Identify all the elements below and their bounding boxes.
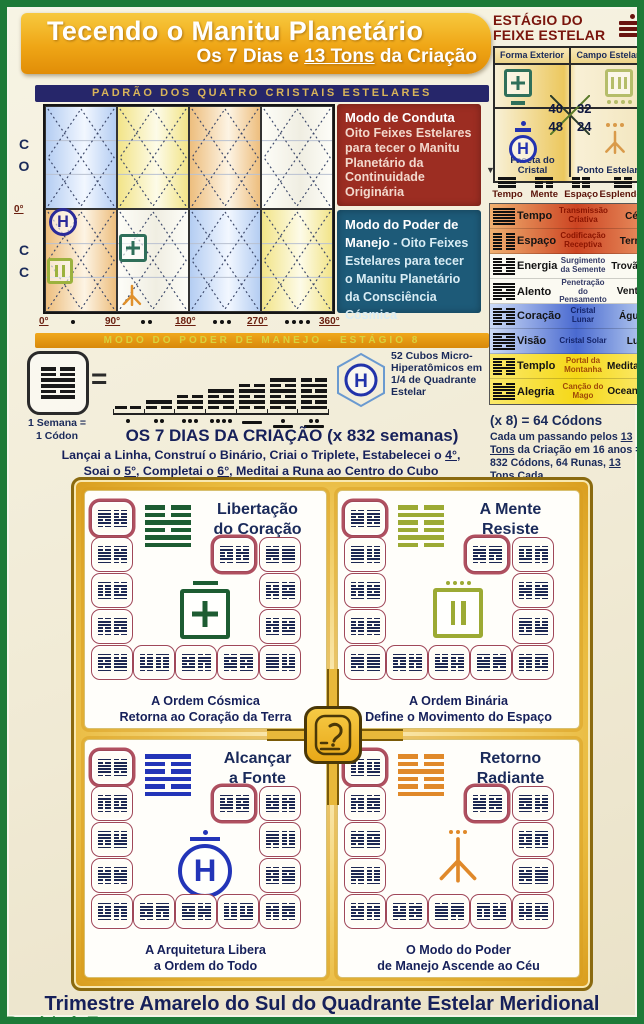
hx-row bbox=[493, 364, 515, 366]
square-plus-icon bbox=[504, 69, 532, 105]
hx-row bbox=[493, 270, 515, 272]
hexagram-icon bbox=[535, 546, 548, 564]
chart-cell bbox=[45, 106, 117, 209]
hx-row bbox=[114, 883, 127, 885]
hx-row bbox=[98, 867, 111, 869]
hx-row bbox=[98, 873, 111, 875]
hx-row bbox=[493, 286, 515, 288]
hx-row bbox=[266, 883, 279, 885]
hx-row bbox=[535, 811, 548, 813]
hx-row bbox=[473, 801, 486, 803]
hx-row bbox=[535, 831, 548, 833]
hx-row bbox=[519, 582, 532, 584]
quadrant-caption: A Arquitetura Liberaa Ordem do Todo bbox=[85, 942, 326, 974]
hexagram-icon bbox=[98, 903, 111, 921]
hexagram-icon bbox=[98, 618, 111, 636]
hx-row bbox=[367, 591, 380, 593]
hexagram-icon bbox=[535, 618, 548, 636]
deco-dot bbox=[521, 121, 526, 126]
hx-row bbox=[41, 390, 75, 394]
hx-row bbox=[282, 840, 295, 842]
hx-row bbox=[145, 528, 191, 533]
deco-bar bbox=[511, 101, 525, 105]
hx-row bbox=[409, 654, 422, 656]
rune-tile bbox=[91, 573, 133, 608]
rune-tile bbox=[91, 501, 133, 536]
rune-tile bbox=[213, 537, 255, 572]
hx-row bbox=[282, 582, 295, 584]
hx-row bbox=[98, 883, 111, 885]
hx-row bbox=[98, 558, 111, 560]
hx-row bbox=[367, 598, 380, 600]
hexagram-icon bbox=[239, 384, 265, 410]
hx-row bbox=[493, 383, 515, 385]
hx-row bbox=[182, 654, 195, 656]
hx-row bbox=[220, 804, 233, 806]
hx-row bbox=[266, 555, 279, 557]
svg-text:H: H bbox=[354, 371, 368, 392]
hx-row bbox=[493, 323, 515, 325]
hx-row bbox=[198, 915, 211, 917]
hx-row bbox=[98, 670, 111, 672]
hx-row bbox=[114, 775, 127, 777]
hexagram-icon bbox=[114, 867, 127, 885]
axis-label: 0° bbox=[39, 316, 49, 327]
hx-row bbox=[114, 552, 127, 554]
hx-row bbox=[266, 549, 279, 551]
hexagram-icon bbox=[451, 903, 464, 921]
hx-row bbox=[266, 807, 279, 809]
hx-row bbox=[140, 654, 153, 656]
hexagram-icon bbox=[493, 208, 515, 225]
stage-num-40: 40 bbox=[549, 101, 563, 116]
hx-row bbox=[282, 562, 295, 564]
hx-row bbox=[409, 660, 422, 662]
hx-row bbox=[156, 906, 169, 908]
hx-row bbox=[519, 558, 532, 560]
hx-row bbox=[301, 384, 327, 388]
hx-row bbox=[535, 873, 548, 875]
hx-row bbox=[240, 663, 253, 665]
hx-row bbox=[351, 657, 364, 659]
hx-row bbox=[351, 585, 364, 587]
hexagram-icon bbox=[493, 654, 506, 672]
hx-row bbox=[145, 769, 191, 774]
hx-row bbox=[182, 912, 195, 914]
hx-row bbox=[493, 339, 515, 341]
hexagram-icon bbox=[266, 654, 279, 672]
conduct-body: Oito Feixes Estelares para tecer o Manit… bbox=[345, 126, 473, 200]
hx-row bbox=[41, 378, 75, 382]
hexagram-icon bbox=[224, 654, 237, 672]
quadrant-libertacao-do-coracao: Libertaçãodo Coração A Ordem CósmicaReto… bbox=[84, 490, 327, 729]
hexagon-crystal-icon: H bbox=[334, 351, 388, 414]
sym-core: H bbox=[509, 135, 537, 163]
hx-row bbox=[489, 801, 502, 803]
hx-row bbox=[519, 795, 532, 797]
hx-row bbox=[220, 555, 233, 557]
hx-row bbox=[282, 847, 295, 849]
hx-row bbox=[493, 223, 515, 225]
hx-row bbox=[398, 505, 444, 510]
hx-row bbox=[493, 273, 515, 275]
hx-row bbox=[367, 663, 380, 665]
hx-row bbox=[398, 777, 444, 782]
codon-desc: Codificação Receptiva bbox=[559, 232, 607, 249]
hx-row bbox=[41, 373, 75, 377]
deco-bar bbox=[193, 581, 218, 585]
hexagram-icon bbox=[156, 903, 169, 921]
hx-row bbox=[519, 618, 532, 620]
hx-row bbox=[535, 624, 548, 626]
hx-row bbox=[519, 546, 532, 548]
hx-row bbox=[98, 903, 111, 905]
hx-row bbox=[519, 912, 532, 914]
trident-icon bbox=[603, 123, 627, 159]
hx-row bbox=[493, 308, 515, 310]
hx-row bbox=[98, 634, 111, 636]
hx-row bbox=[493, 392, 515, 394]
hx-row bbox=[282, 585, 295, 587]
hx-row bbox=[535, 906, 548, 908]
hx-row bbox=[114, 867, 127, 869]
hx-row bbox=[409, 919, 422, 921]
hx-row bbox=[266, 831, 279, 833]
hx-row bbox=[266, 879, 279, 881]
hx-row bbox=[351, 552, 364, 554]
hx-row bbox=[114, 654, 127, 656]
hx-row bbox=[477, 915, 490, 917]
instr1-underlined: 4° bbox=[445, 448, 457, 462]
title-line2: a Fonte bbox=[229, 770, 286, 787]
hx-row bbox=[451, 670, 464, 672]
hx-row bbox=[367, 526, 380, 528]
hexagram-icon bbox=[535, 831, 548, 849]
hx-row bbox=[220, 795, 233, 797]
hx-row bbox=[519, 594, 532, 596]
hx-row bbox=[266, 798, 279, 800]
hx-row bbox=[266, 912, 279, 914]
hx-row bbox=[140, 657, 153, 659]
rune-tile bbox=[91, 645, 133, 680]
hx-row bbox=[351, 919, 364, 921]
hexagram-icon bbox=[351, 867, 364, 885]
axis-label: 180° bbox=[175, 316, 196, 327]
hexagram-icon bbox=[98, 582, 111, 600]
hx-row bbox=[398, 792, 444, 797]
hx-row bbox=[493, 670, 506, 672]
hx-row bbox=[493, 660, 506, 662]
hx-row bbox=[145, 784, 191, 789]
hx-row bbox=[220, 552, 233, 554]
day-stack bbox=[175, 395, 206, 410]
hx-row bbox=[114, 919, 127, 921]
title-line2: do Coração bbox=[213, 521, 301, 538]
hx-row bbox=[398, 543, 444, 548]
hx-row bbox=[282, 630, 295, 632]
hx-row bbox=[114, 594, 127, 596]
hx-row bbox=[493, 298, 515, 300]
hx-row bbox=[114, 663, 127, 665]
hx-row bbox=[224, 909, 237, 911]
hexagram-icon bbox=[473, 546, 486, 564]
hexagram-cell bbox=[491, 333, 517, 350]
subtitle-post: da Criação bbox=[375, 46, 477, 67]
hx-row bbox=[114, 762, 127, 764]
hx-row bbox=[98, 807, 111, 809]
deco-dots bbox=[607, 100, 632, 104]
hx-row bbox=[351, 873, 364, 875]
rune-tile bbox=[175, 894, 217, 929]
hx-row bbox=[140, 666, 153, 668]
hexagram-icon bbox=[114, 759, 127, 777]
hx-row bbox=[535, 666, 548, 668]
hx-row bbox=[114, 804, 127, 806]
trigram-column: Esplendor bbox=[600, 177, 644, 200]
hx-row bbox=[98, 876, 111, 878]
hexagram-icon bbox=[240, 654, 253, 672]
hx-row bbox=[156, 915, 169, 917]
hx-row bbox=[351, 510, 364, 512]
hx-row bbox=[98, 510, 111, 512]
hx-row bbox=[182, 906, 195, 908]
trigram-label: Tempo bbox=[492, 189, 522, 200]
hx-row bbox=[114, 843, 127, 845]
hx-row bbox=[182, 919, 195, 921]
circle-h-icon: H bbox=[509, 121, 537, 163]
hx-row bbox=[393, 663, 406, 665]
stage-title-line2: FEIXE ESTELAR bbox=[493, 27, 605, 43]
rune-tile bbox=[259, 573, 301, 608]
hx-row bbox=[301, 389, 327, 393]
hx-row bbox=[114, 513, 127, 515]
hx-row bbox=[182, 909, 195, 911]
hx-row bbox=[493, 336, 515, 338]
hx-row bbox=[114, 870, 127, 872]
hx-row bbox=[535, 801, 548, 803]
hx-row bbox=[493, 211, 515, 213]
hx-row bbox=[41, 367, 75, 371]
hx-row bbox=[156, 912, 169, 914]
day-stack bbox=[298, 378, 329, 409]
hx-row bbox=[367, 627, 380, 629]
stage-num-32: 32 bbox=[577, 101, 591, 116]
hx-row bbox=[519, 831, 532, 833]
hx-row bbox=[114, 666, 127, 668]
rune-tile bbox=[344, 501, 386, 536]
hx-row bbox=[493, 245, 515, 247]
codon-row: VisãoCristal SolarLuz bbox=[490, 329, 644, 354]
hx-row bbox=[282, 621, 295, 623]
hx-row bbox=[240, 912, 253, 914]
hx-row bbox=[114, 624, 127, 626]
hx-row bbox=[535, 804, 548, 806]
hx-row bbox=[98, 552, 111, 554]
hexagram-icon bbox=[114, 654, 127, 672]
power-mode-box: Modo do Poder de Manejo - Oito Feixes Es… bbox=[337, 210, 481, 313]
hx-row bbox=[489, 807, 502, 809]
hx-row bbox=[98, 775, 111, 777]
footer-sep: - bbox=[133, 1018, 143, 1024]
sym-core bbox=[119, 234, 147, 262]
trident-icon bbox=[435, 830, 481, 888]
my-dots bbox=[154, 419, 164, 423]
instruction-line1: Lançai a Linha, Construí o Binário, Cria… bbox=[31, 448, 491, 464]
trigram-column: Espaço bbox=[563, 177, 600, 200]
hx-row bbox=[367, 516, 380, 518]
hx-row bbox=[393, 909, 406, 911]
hx-row bbox=[493, 217, 515, 219]
hx-row bbox=[493, 915, 506, 917]
rune-tile bbox=[470, 645, 512, 680]
hx-row bbox=[270, 395, 296, 399]
hx-row bbox=[535, 657, 548, 659]
hexagram-icon bbox=[519, 795, 532, 813]
hx-row bbox=[351, 666, 364, 668]
hexagram-icon bbox=[451, 654, 464, 672]
hx-row bbox=[451, 909, 464, 911]
circle-h-icon: H bbox=[49, 208, 77, 236]
hx-row bbox=[266, 670, 279, 672]
hx-row bbox=[198, 666, 211, 668]
hx-row bbox=[208, 400, 234, 404]
hx-row bbox=[435, 670, 448, 672]
hx-row bbox=[236, 801, 249, 803]
hexagram-icon bbox=[114, 510, 127, 528]
hx-row bbox=[114, 558, 127, 560]
hx-row bbox=[266, 618, 279, 620]
hx-row bbox=[351, 867, 364, 869]
hx-row bbox=[409, 666, 422, 668]
hx-row bbox=[220, 801, 233, 803]
rune-tile bbox=[512, 609, 554, 644]
hx-row bbox=[367, 660, 380, 662]
hx-row bbox=[282, 804, 295, 806]
hx-row bbox=[266, 843, 279, 845]
hexagram-icon bbox=[266, 795, 279, 813]
my-dots bbox=[210, 419, 232, 423]
hx-row bbox=[98, 516, 111, 518]
hx-row bbox=[398, 513, 444, 518]
hx-row bbox=[145, 792, 191, 797]
hx-row bbox=[98, 771, 111, 773]
hexagram-icon bbox=[282, 582, 295, 600]
hx-row bbox=[351, 522, 364, 524]
hx-row bbox=[236, 549, 249, 551]
hx-row bbox=[535, 834, 548, 836]
rune-tile bbox=[466, 537, 508, 572]
codon-element: Água bbox=[607, 311, 644, 322]
hx-row bbox=[489, 562, 502, 564]
hx-row bbox=[435, 903, 448, 905]
rune-tile bbox=[259, 786, 301, 821]
hx-row bbox=[367, 795, 380, 797]
hx-row bbox=[98, 879, 111, 881]
hexagram-icon bbox=[114, 618, 127, 636]
stage-grid: Forma Exterior Campo Estelar 40 32 48 24… bbox=[493, 46, 644, 183]
codon-name: Energia bbox=[517, 260, 559, 272]
hx-row bbox=[473, 798, 486, 800]
hx-row bbox=[266, 847, 279, 849]
hx-row bbox=[489, 804, 502, 806]
axis-dots bbox=[285, 320, 310, 324]
hexagram-icon bbox=[614, 177, 632, 188]
rune-tile bbox=[344, 822, 386, 857]
hx-row bbox=[351, 513, 364, 515]
hx-row bbox=[220, 562, 233, 564]
hx-row bbox=[98, 906, 111, 908]
hx-row bbox=[393, 657, 406, 659]
hexagram-icon bbox=[519, 903, 532, 921]
hx-row bbox=[98, 804, 111, 806]
hexagram-icon bbox=[572, 177, 590, 188]
hx-row bbox=[114, 582, 127, 584]
hx-row bbox=[451, 912, 464, 914]
note-p1: Cada um passando pelos bbox=[490, 431, 621, 443]
hx-row bbox=[367, 834, 380, 836]
hexagram-icon bbox=[435, 903, 448, 921]
hx-row bbox=[367, 555, 380, 557]
hx-row bbox=[535, 903, 548, 905]
hx-row bbox=[367, 912, 380, 914]
hx-row bbox=[493, 373, 515, 375]
hx-row bbox=[367, 552, 380, 554]
hx-row bbox=[114, 562, 127, 564]
hx-row bbox=[351, 549, 364, 551]
hx-row bbox=[498, 177, 516, 180]
hx-row bbox=[220, 546, 233, 548]
hx-row bbox=[489, 552, 502, 554]
hx-row bbox=[156, 660, 169, 662]
hx-row bbox=[493, 314, 515, 316]
hexagram-icon bbox=[477, 654, 490, 672]
hx-row bbox=[198, 670, 211, 672]
trigram-header-row: TempoMenteEspaçoEsplendor bbox=[489, 177, 644, 200]
hx-row bbox=[98, 627, 111, 629]
rune-tile bbox=[344, 645, 386, 680]
hx-row bbox=[140, 663, 153, 665]
label-cc: CC bbox=[15, 239, 33, 284]
big-hexagram bbox=[398, 505, 444, 547]
hx-row bbox=[266, 906, 279, 908]
hx-row bbox=[98, 798, 111, 800]
hx-row bbox=[282, 552, 295, 554]
hx-row bbox=[98, 840, 111, 842]
square-bars-icon bbox=[433, 581, 483, 638]
hx-row bbox=[236, 555, 249, 557]
hexagram-icon bbox=[535, 177, 553, 188]
hx-row bbox=[266, 558, 279, 560]
hx-row bbox=[282, 663, 295, 665]
hx-row bbox=[239, 384, 265, 388]
hx-row bbox=[156, 654, 169, 656]
hx-row bbox=[493, 317, 515, 319]
hx-row bbox=[535, 185, 553, 188]
codon-row: TempoTransmissão CriativaCéu bbox=[490, 204, 644, 229]
hx-row bbox=[98, 834, 111, 836]
rune-tile bbox=[133, 894, 175, 929]
rune-tile bbox=[512, 645, 554, 680]
hx-row bbox=[114, 906, 127, 908]
hx-row bbox=[351, 915, 364, 917]
hx-row bbox=[266, 552, 279, 554]
hx-row bbox=[367, 843, 380, 845]
hx-row bbox=[519, 591, 532, 593]
codon-row: AlentoPenetração do PensamentoVento bbox=[490, 279, 644, 304]
hx-row bbox=[367, 804, 380, 806]
hx-row bbox=[519, 588, 532, 590]
quadrant-title: A MenteResiste bbox=[446, 500, 575, 539]
